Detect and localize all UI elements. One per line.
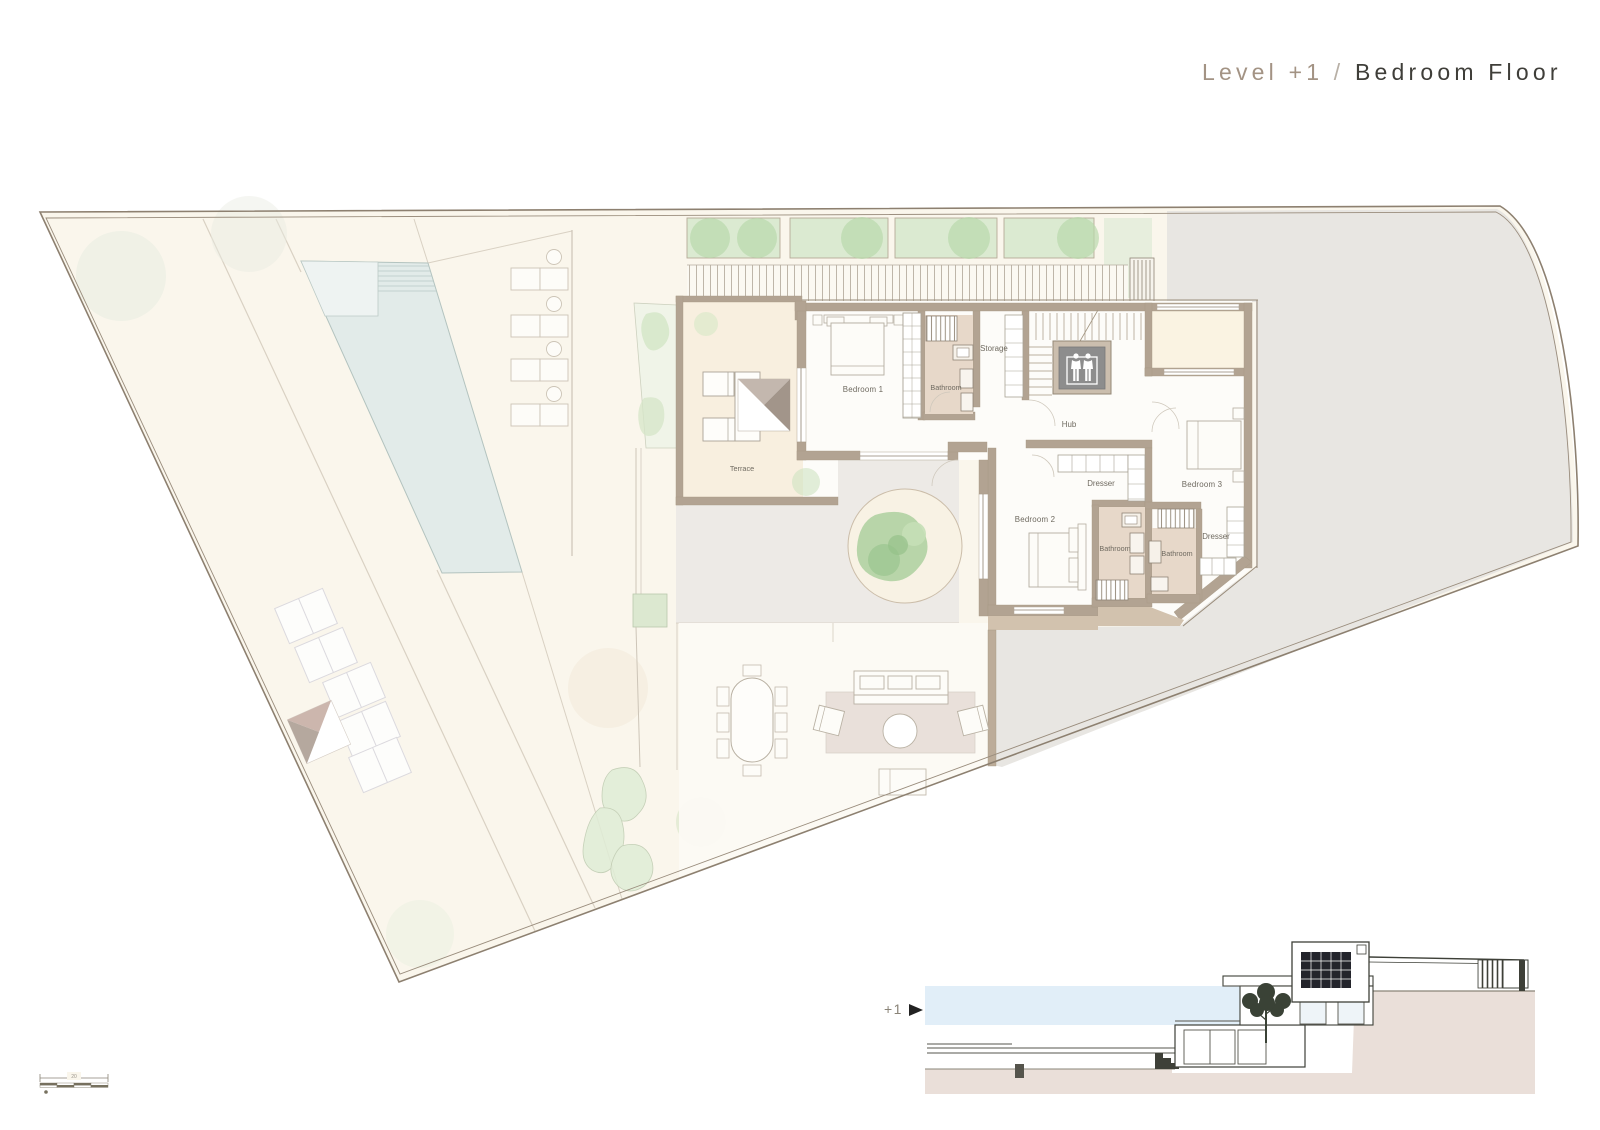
svg-text:Terrace: Terrace [730,464,754,473]
svg-text:20: 20 [71,1074,77,1080]
svg-text:Dresser: Dresser [1087,479,1115,488]
svg-text:Bedroom 1: Bedroom 1 [843,385,883,394]
svg-text:Bedroom 3: Bedroom 3 [1182,480,1223,489]
svg-text:Bathroom: Bathroom [1161,549,1192,558]
svg-text:Level +1 / Bedroom Floor: Level +1 / Bedroom Floor [1202,59,1562,85]
svg-text:Bathroom: Bathroom [930,383,961,392]
svg-text:Bedroom 2: Bedroom 2 [1015,515,1055,524]
svg-text:Storage: Storage [980,344,1008,353]
svg-text:Bathroom: Bathroom [1099,544,1130,553]
svg-text:+1: +1 [884,1001,903,1017]
svg-text:Hub: Hub [1062,420,1077,429]
svg-text:Dresser: Dresser [1202,532,1230,541]
